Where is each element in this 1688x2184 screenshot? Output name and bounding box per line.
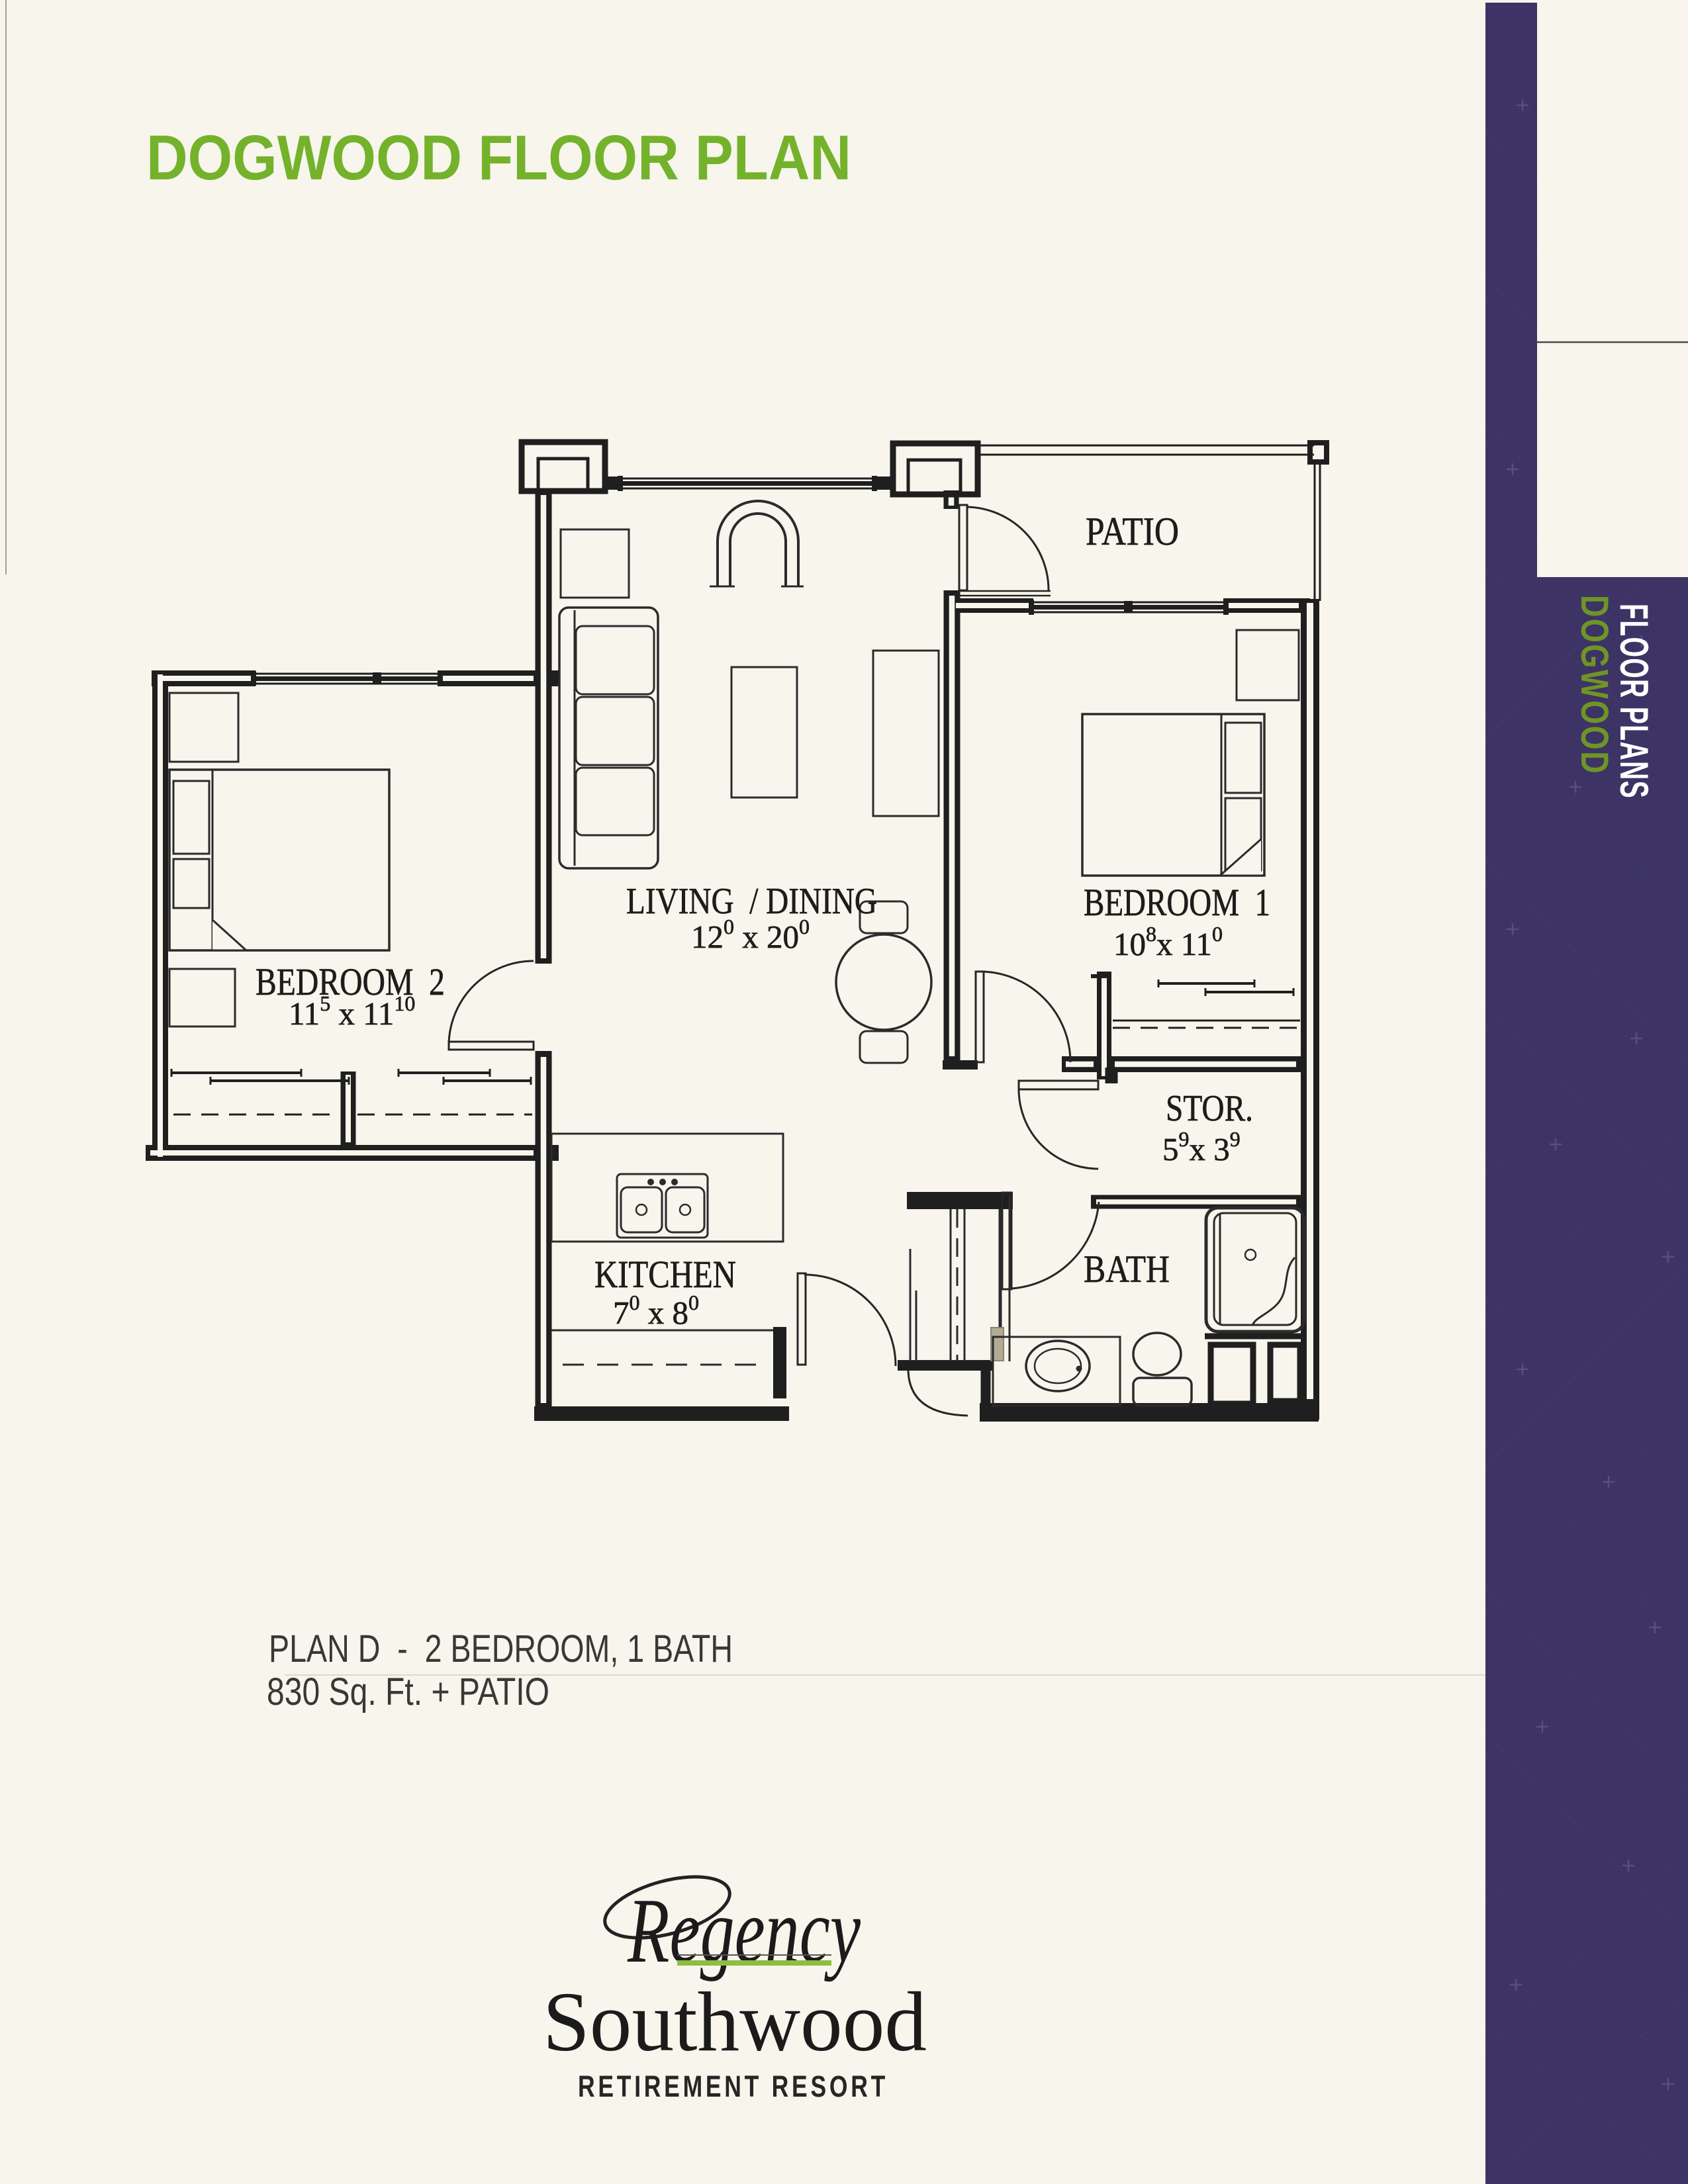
svg-text:BATH: BATH <box>1084 1248 1170 1291</box>
svg-text:830 Sq. Ft. + PATIO: 830 Sq. Ft. + PATIO <box>267 1670 549 1713</box>
svg-text:59x 39: 59x 39 <box>1162 1127 1241 1167</box>
svg-text:BEDROOM 1: BEDROOM 1 <box>1084 881 1270 924</box>
svg-text:RETIREMENT RESORT: RETIREMENT RESORT <box>578 2070 888 2103</box>
svg-text:Regency: Regency <box>627 1880 861 1982</box>
svg-text:LIVING / DINING: LIVING / DINING <box>626 881 877 922</box>
svg-text:Southwood: Southwood <box>543 1975 927 2069</box>
svg-text:70 x 80: 70 x 80 <box>613 1291 699 1331</box>
svg-text:STOR.: STOR. <box>1166 1088 1253 1129</box>
svg-text:PATIO: PATIO <box>1086 510 1179 553</box>
svg-text:PLAN D - 2 BEDROOM, 1 BATH: PLAN D - 2 BEDROOM, 1 BATH <box>269 1627 733 1670</box>
svg-text:DOGWOOD FLOOR PLAN: DOGWOOD FLOOR PLAN <box>146 122 851 193</box>
svg-text:KITCHEN: KITCHEN <box>594 1253 736 1296</box>
svg-text:DOGWOOD: DOGWOOD <box>1573 595 1616 775</box>
svg-text:120 x 200: 120 x 200 <box>691 915 810 955</box>
svg-text:108x 110: 108x 110 <box>1113 922 1223 962</box>
svg-text:FLOOR PLANS: FLOOR PLANS <box>1612 604 1656 799</box>
